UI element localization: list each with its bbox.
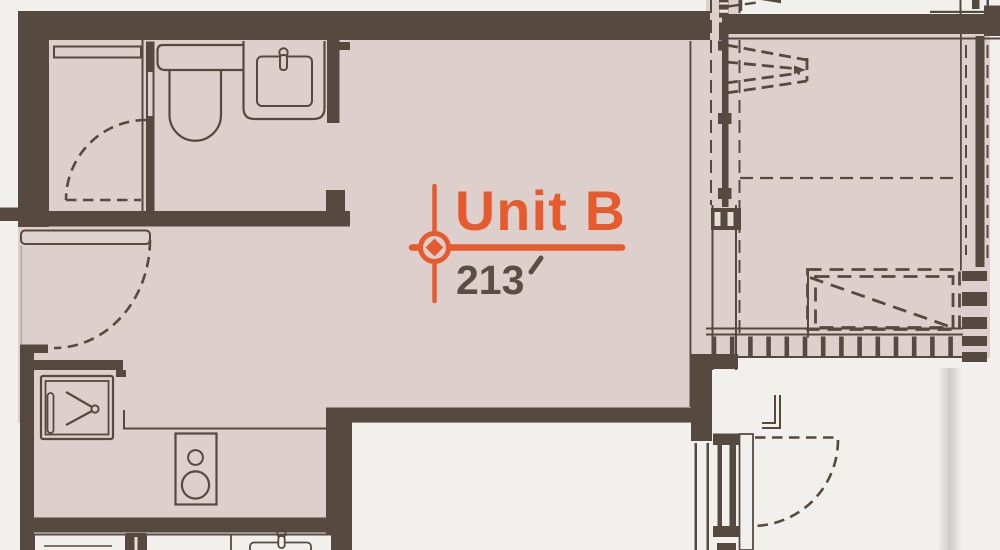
svg-text:Unit B: Unit B (455, 180, 626, 242)
svg-text:213: 213 (456, 257, 524, 303)
